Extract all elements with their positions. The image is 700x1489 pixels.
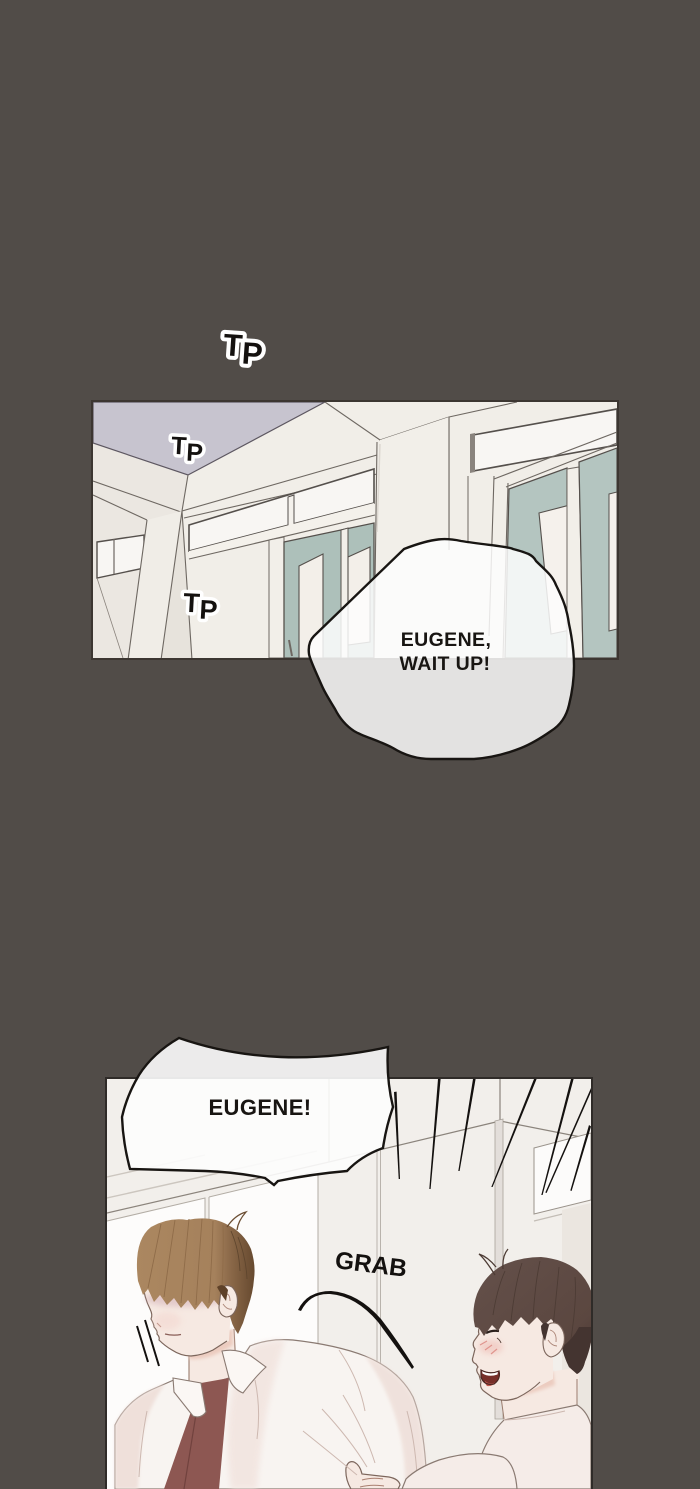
svg-text:WAIT UP!: WAIT UP! <box>400 653 491 675</box>
svg-text:TP: TP <box>222 327 264 372</box>
svg-text:EUGENE!: EUGENE! <box>208 1095 311 1120</box>
svg-text:GRAB: GRAB <box>334 1247 409 1283</box>
svg-text:EUGENE,: EUGENE, <box>401 629 492 651</box>
svg-text:TP: TP <box>182 588 218 626</box>
svg-text:TP: TP <box>170 432 204 468</box>
